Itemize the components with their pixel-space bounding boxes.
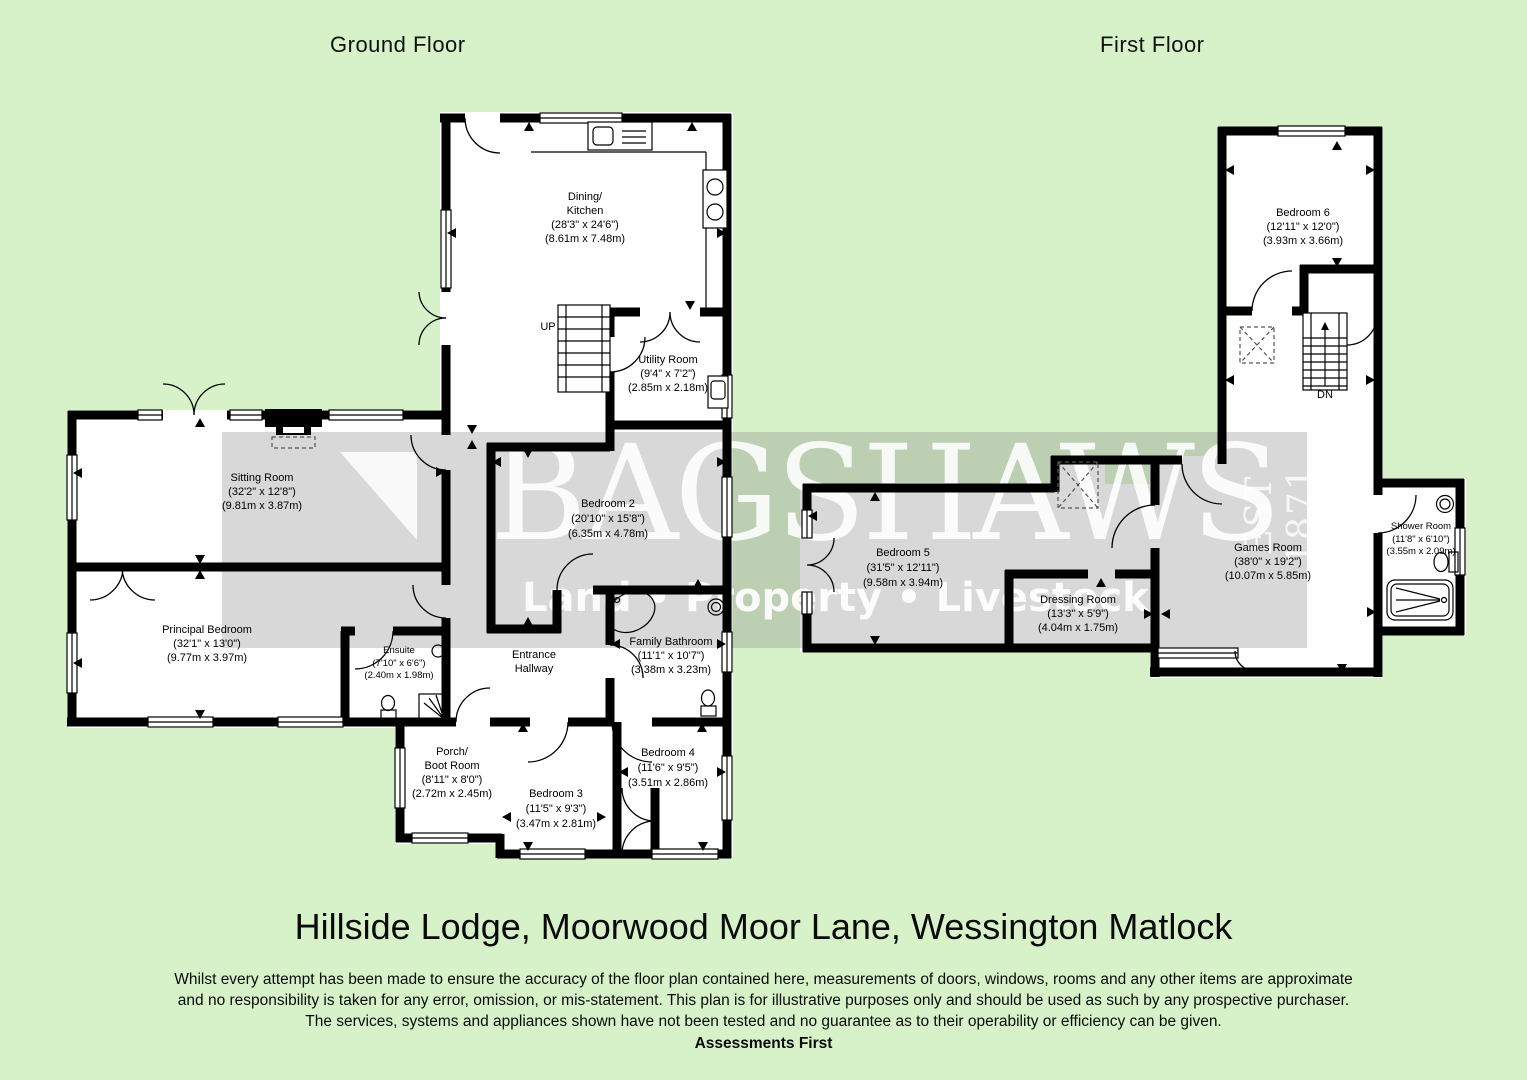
room-name: Dining/	[485, 190, 685, 204]
toilet-icon	[701, 690, 716, 716]
sink-icon	[588, 122, 652, 150]
room-label-bedroom-5: Bedroom 5 (31'5" x 12'11") (9.58m x 3.94…	[803, 546, 1003, 591]
disclaimer-line: Whilst every attempt has been made to en…	[0, 969, 1527, 990]
room-dims: (32'1" x 13'0")	[107, 637, 307, 651]
room-dims: (3.47m x 2.81m)	[456, 817, 656, 832]
room-dims: (11'1" x 10'7")	[571, 649, 771, 663]
disclaimer-text: Whilst every attempt has been made to en…	[0, 969, 1527, 1054]
chimney-breast	[265, 409, 322, 448]
rooflight-icon	[1058, 327, 1274, 508]
stairs-dn	[1303, 313, 1347, 390]
room-dims: (8'11" x 8'0")	[352, 773, 552, 787]
room-dims: (12'11" x 12'0")	[1203, 220, 1403, 234]
room-label-bedroom-3: Bedroom 3 (11'5" x 9'3") (3.47m x 2.81m)	[456, 787, 656, 832]
room-dims: (11'8" x 6'10")	[1321, 534, 1521, 547]
room-name: Shower Room	[1321, 521, 1521, 534]
room-name: Principal Bedroom	[107, 623, 307, 637]
room-name: Family Bathroom	[571, 635, 771, 649]
room-label-bedroom-6: Bedroom 6 (12'11" x 12'0") (3.93m x 3.66…	[1203, 206, 1403, 248]
room-name: Utility Room	[568, 353, 768, 367]
assessments-first-brand: Assessments First	[0, 1033, 1527, 1054]
room-dims: (9.58m x 3.94m)	[803, 576, 1003, 591]
shower-basin-icon	[1437, 496, 1454, 513]
room-dims: (20'10" x 15'8")	[508, 512, 708, 527]
disclaimer-line: and no responsibility is taken for any e…	[0, 990, 1527, 1011]
room-dims: (32'2" x 12'8")	[162, 485, 362, 499]
room-label-dressing-room: Dressing Room (13'3" x 5'9") (4.04m x 1.…	[978, 593, 1178, 635]
room-label-dining-kitchen: Dining/ Kitchen (28'3" x 24'6") (8.61m x…	[485, 190, 685, 246]
room-dims: (2.85m x 2.18m)	[568, 381, 768, 395]
room-name: Boot Room	[352, 759, 552, 773]
room-label-sitting: Sitting Room (32'2" x 12'8") (9.81m x 3.…	[162, 471, 362, 513]
stairs-dn-label: DN	[1308, 389, 1342, 401]
room-dims: (3.93m x 3.66m)	[1203, 234, 1403, 248]
room-dims: (6.35m x 4.78m)	[508, 527, 708, 542]
basin-icon	[708, 599, 724, 615]
room-label-principal-bedroom: Principal Bedroom (32'1" x 13'0") (9.77m…	[107, 623, 307, 665]
room-dims: (10.07m x 5.85m)	[1168, 569, 1368, 583]
room-label-utility: Utility Room (9'4" x 7'2") (2.85m x 2.18…	[568, 353, 768, 395]
room-dims: (11'5" x 9'3")	[456, 802, 656, 817]
room-name: Kitchen	[485, 204, 685, 218]
room-dims: (3.38m x 3.23m)	[571, 663, 771, 677]
shower-bath-icon	[1387, 580, 1453, 620]
room-name: Dressing Room	[978, 593, 1178, 607]
stairs-up-label: UP	[531, 321, 565, 333]
room-label-bedroom-4: Bedroom 4 (11'6" x 9'5") (3.51m x 2.86m)	[568, 746, 768, 791]
room-label-shower-room: Shower Room (11'8" x 6'10") (3.55m x 2.0…	[1321, 521, 1521, 559]
floorplan-page: Ground Floor First Floor BAGSHAWS Land •…	[0, 0, 1527, 1080]
room-dims: (3.55m x 2.09m)	[1321, 546, 1521, 559]
room-dims: (3.51m x 2.86m)	[568, 776, 768, 791]
room-name: Porch/	[352, 745, 552, 759]
room-dims: (9.77m x 3.97m)	[107, 651, 307, 665]
ensuite-toilet-icon	[381, 696, 396, 720]
room-dims: (9'4" x 7'2")	[568, 367, 768, 381]
room-dims: (13'3" x 5'9")	[978, 607, 1178, 621]
disclaimer-line: The services, systems and appliances sho…	[0, 1011, 1527, 1032]
room-name: Bedroom 6	[1203, 206, 1403, 220]
room-label-family-bathroom: Family Bathroom (11'1" x 10'7") (3.38m x…	[571, 635, 771, 677]
room-dims: (4.04m x 1.75m)	[978, 621, 1178, 635]
room-name: Bedroom 4	[568, 746, 768, 761]
room-dims: (31'5" x 12'11")	[803, 561, 1003, 576]
room-dims: (28'3" x 24'6")	[485, 218, 685, 232]
room-dims: (11'6" x 9'5")	[568, 761, 768, 776]
room-name: Bedroom 2	[508, 497, 708, 512]
room-name: Bedroom 5	[803, 546, 1003, 561]
room-name: Sitting Room	[162, 471, 362, 485]
hob-icon	[703, 170, 727, 228]
room-label-bedroom-2: Bedroom 2 (20'10" x 15'8") (6.35m x 4.78…	[508, 497, 708, 542]
property-address-title: Hillside Lodge, Moorwood Moor Lane, Wess…	[0, 906, 1527, 948]
room-dims: (9.81m x 3.87m)	[162, 499, 362, 513]
room-dims: (8.61m x 7.48m)	[485, 232, 685, 246]
